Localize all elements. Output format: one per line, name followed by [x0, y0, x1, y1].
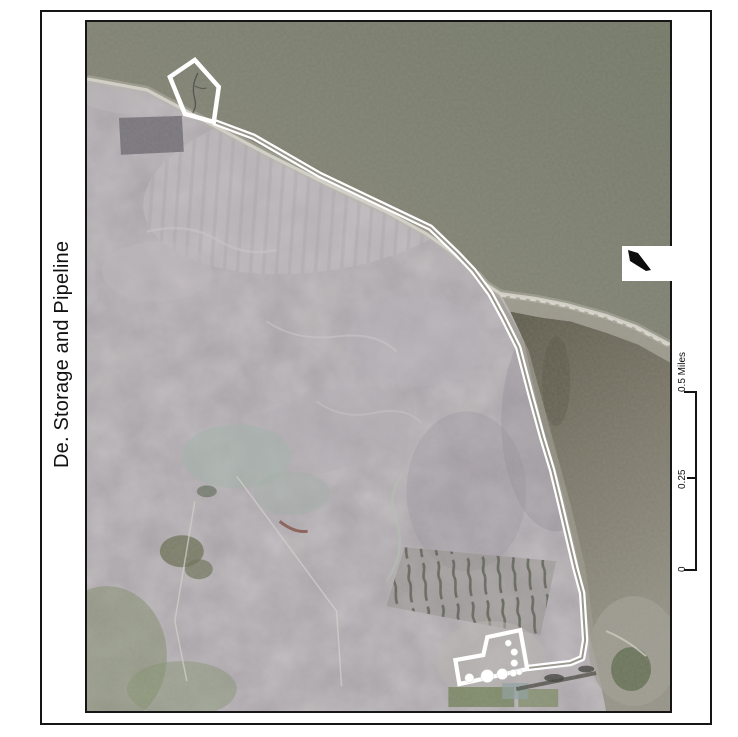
- map-canvas: [85, 20, 672, 713]
- scale-label-zero: 0: [677, 566, 689, 572]
- aerial-photo: [87, 22, 670, 711]
- map-title: De. Storage and Pipeline: [50, 241, 74, 468]
- scale-label-quarter-mile: 0.25: [677, 470, 689, 489]
- scale-bar: [695, 391, 697, 571]
- north-arrow-box: [622, 246, 672, 281]
- map-document: De. Storage and Pipeline: [0, 0, 738, 737]
- north-arrow-icon: [627, 249, 653, 273]
- scale-label-half-mile: 0.5 Miles: [677, 352, 689, 392]
